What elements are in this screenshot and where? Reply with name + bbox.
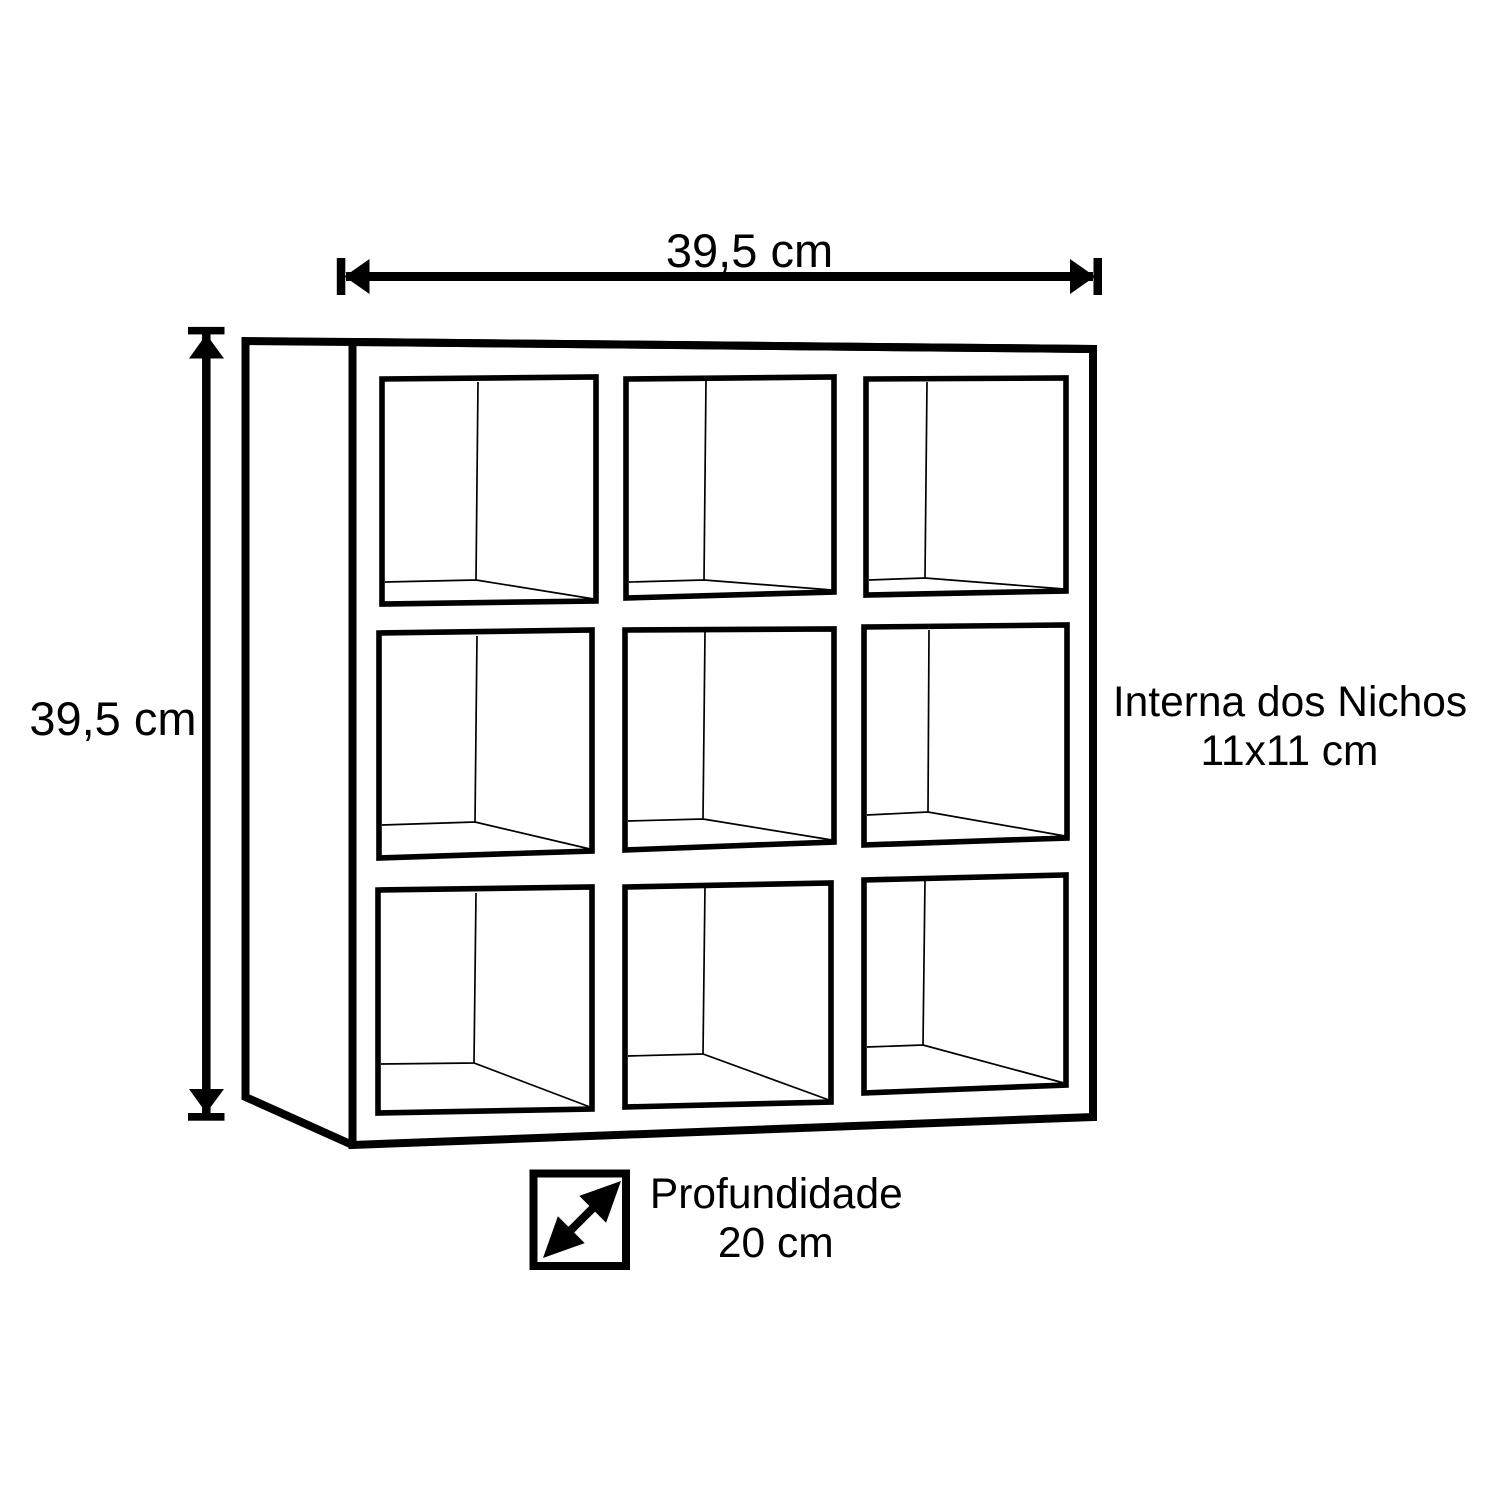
svg-text:Profundidade: Profundidade xyxy=(650,1171,903,1218)
svg-text:20 cm: 20 cm xyxy=(718,1220,834,1267)
svg-text:39,5 cm: 39,5 cm xyxy=(666,224,833,277)
svg-text:39,5 cm: 39,5 cm xyxy=(29,692,196,745)
svg-text:11x11 cm: 11x11 cm xyxy=(1201,728,1379,775)
svg-text:Interna dos Nichos: Interna dos Nichos xyxy=(1113,679,1467,726)
